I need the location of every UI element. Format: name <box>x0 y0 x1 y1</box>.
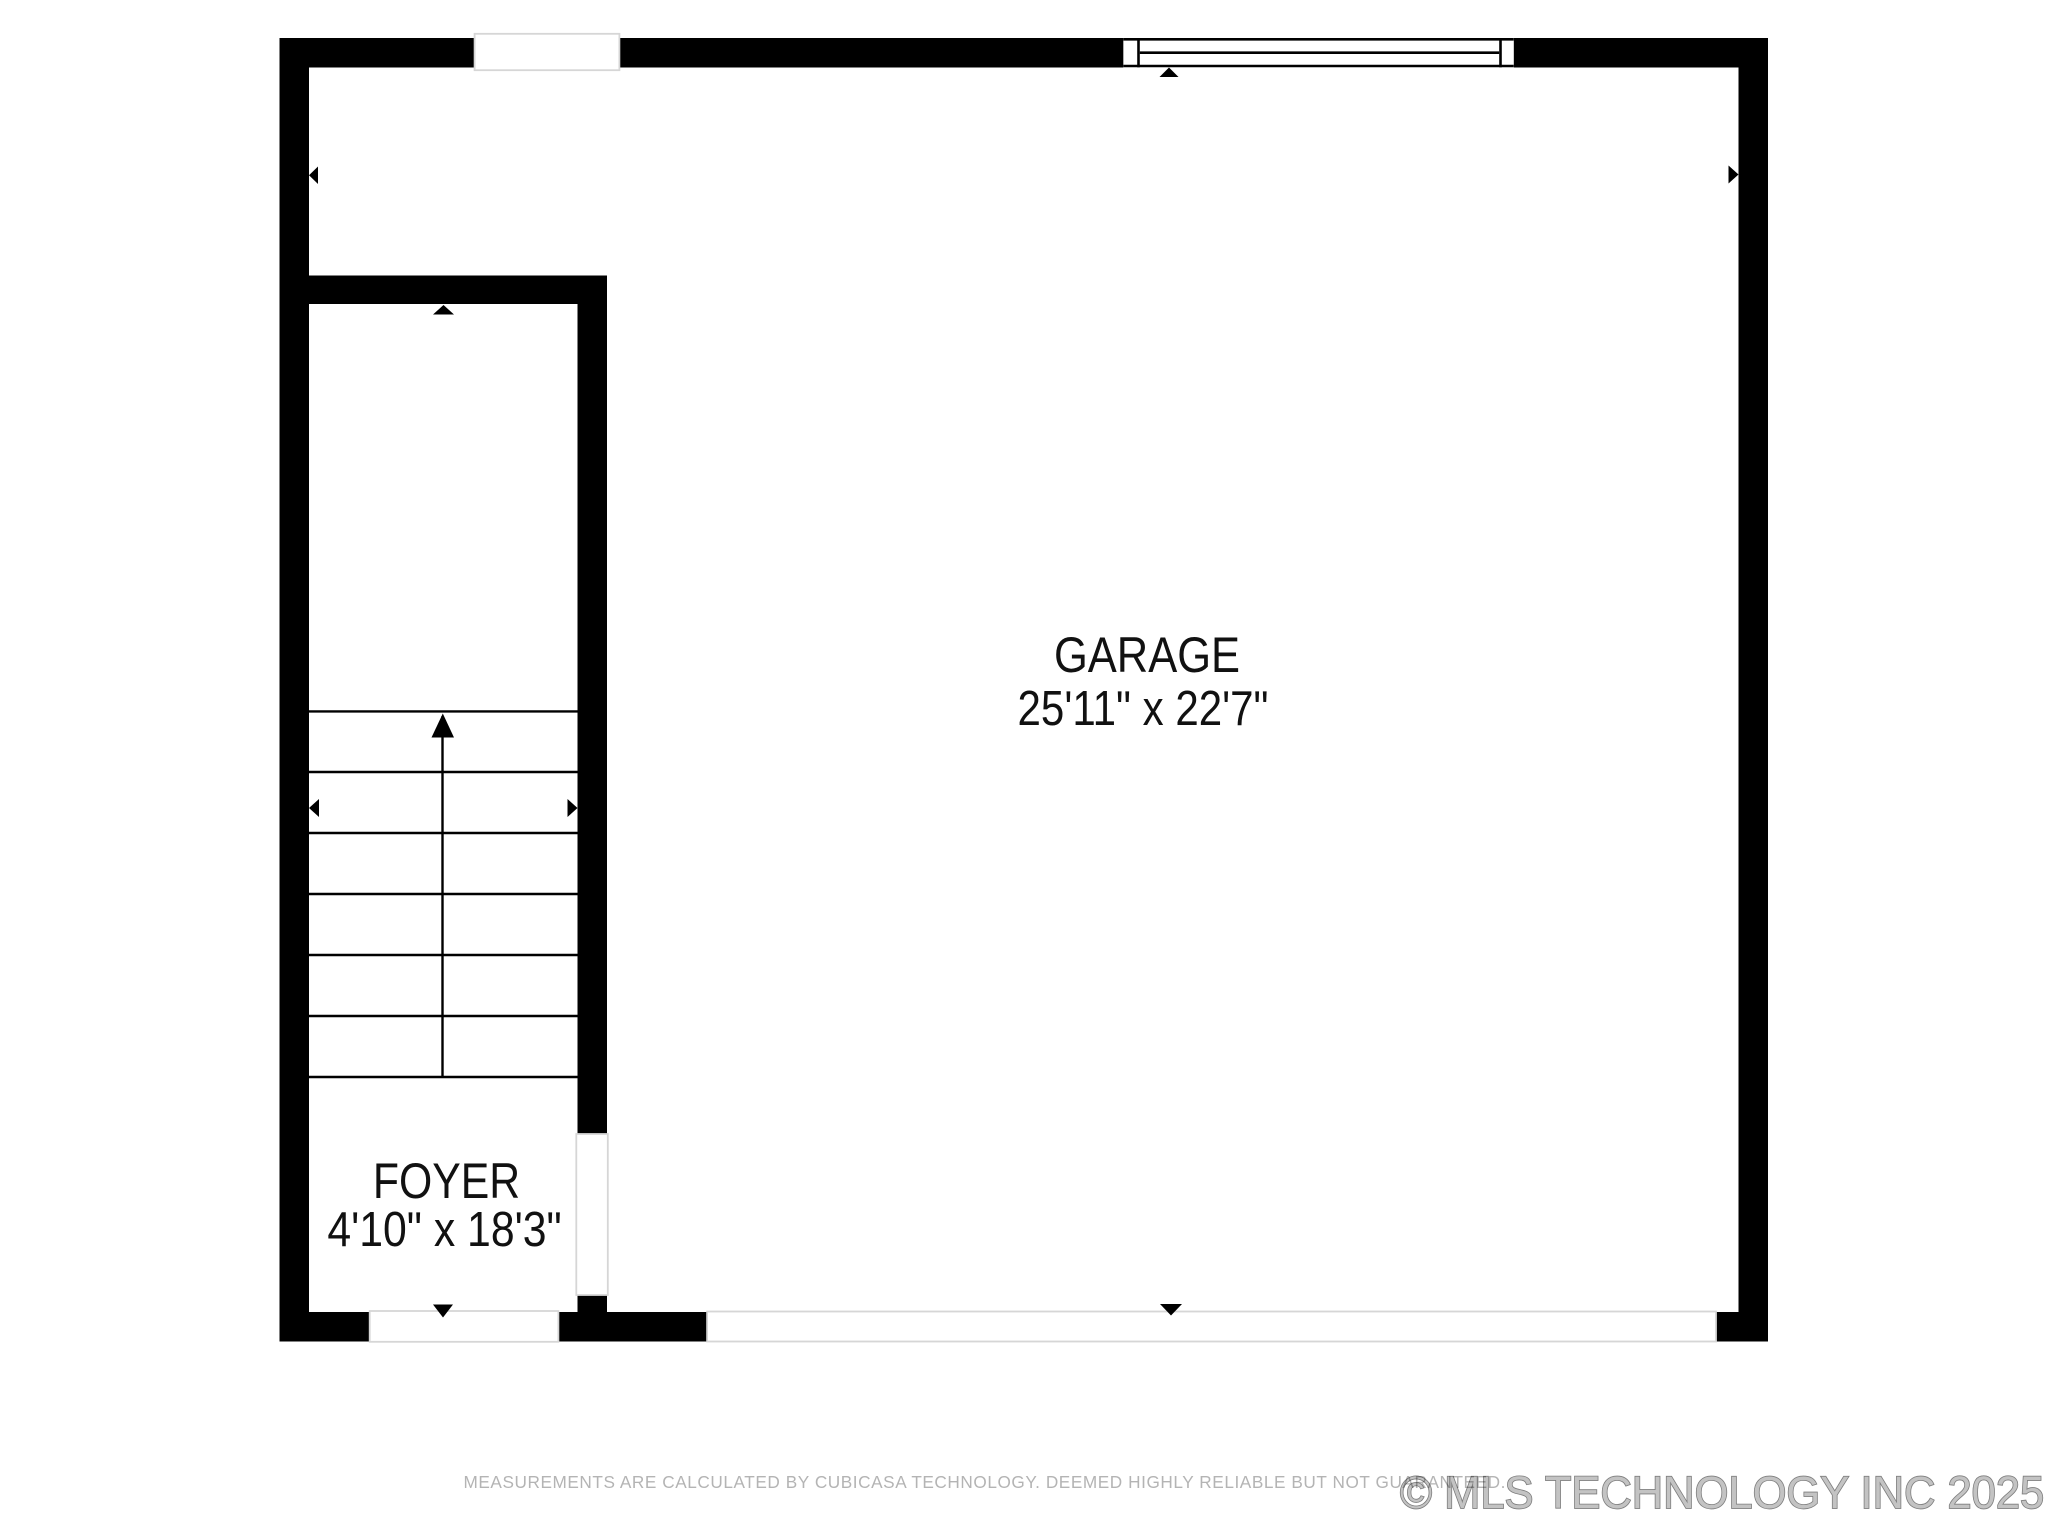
svg-text:25'11" x 22'7": 25'11" x 22'7" <box>1018 681 1269 736</box>
svg-text:4'10" x 18'3": 4'10" x 18'3" <box>327 1201 561 1256</box>
svg-text:MEASUREMENTS ARE CALCULATED BY: MEASUREMENTS ARE CALCULATED BY CUBICASA … <box>464 1472 1506 1492</box>
svg-text:GARAGE: GARAGE <box>1054 627 1240 682</box>
